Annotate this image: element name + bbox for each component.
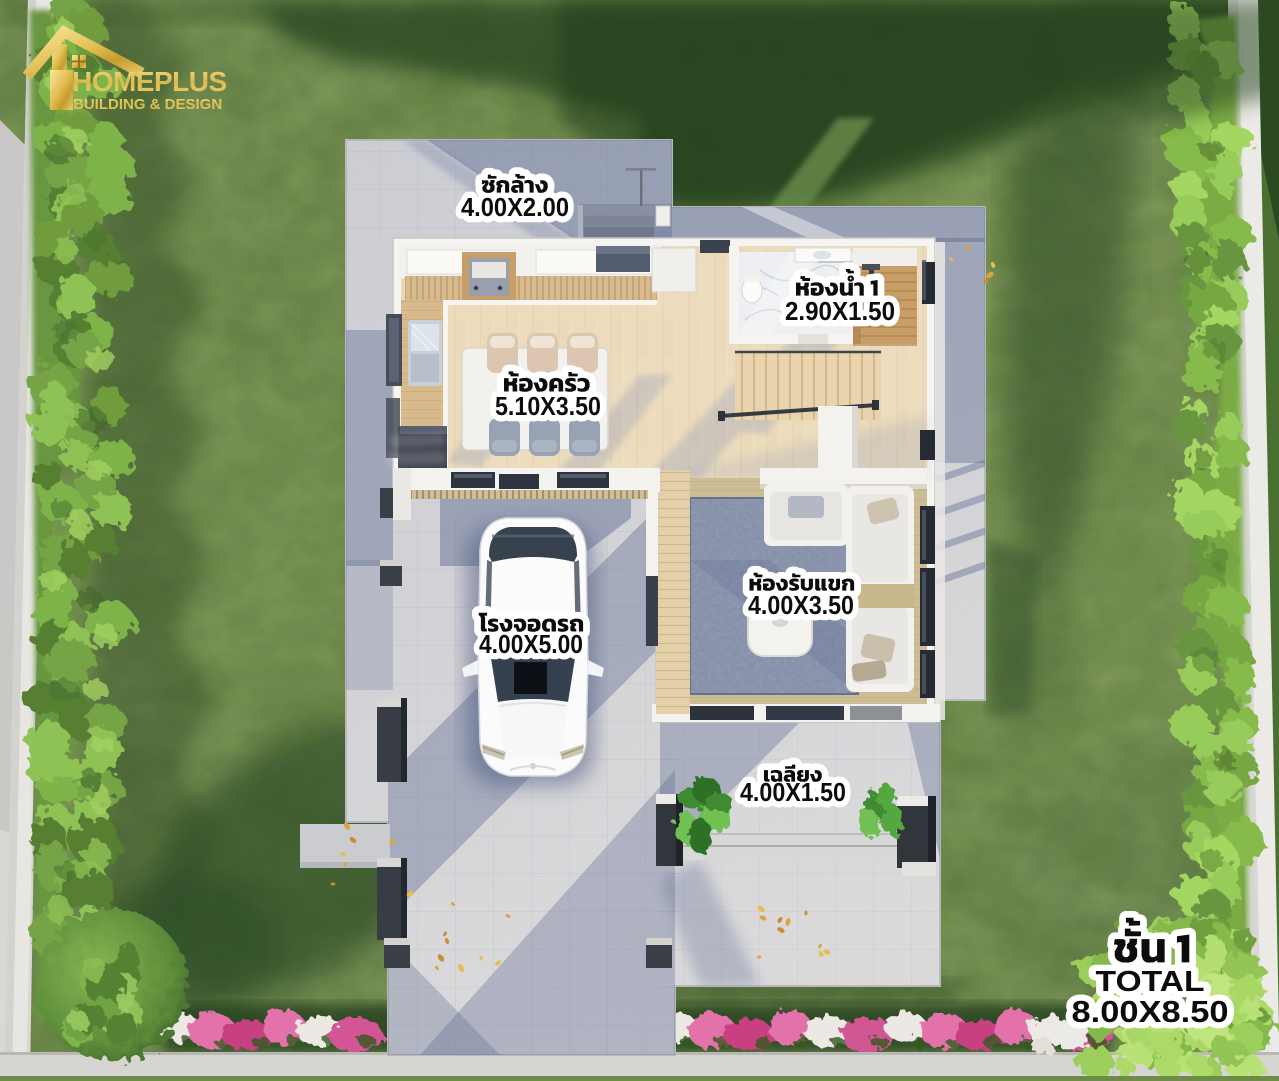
svg-text:4.00X3.50: 4.00X3.50	[748, 590, 854, 620]
svg-text:2.90X1.50: 2.90X1.50	[785, 296, 895, 326]
svg-text:5.10X3.50: 5.10X3.50	[495, 391, 601, 421]
svg-text:HOMEPLUS: HOMEPLUS	[72, 66, 227, 97]
svg-text:4.00X1.50: 4.00X1.50	[740, 777, 846, 807]
svg-text:4.00X5.00: 4.00X5.00	[479, 629, 583, 659]
svg-text:4.00X2.00: 4.00X2.00	[461, 192, 569, 222]
svg-text:8.00X8.50: 8.00X8.50	[1072, 994, 1229, 1029]
svg-text:BUILDING & DESIGN: BUILDING & DESIGN	[73, 96, 222, 113]
